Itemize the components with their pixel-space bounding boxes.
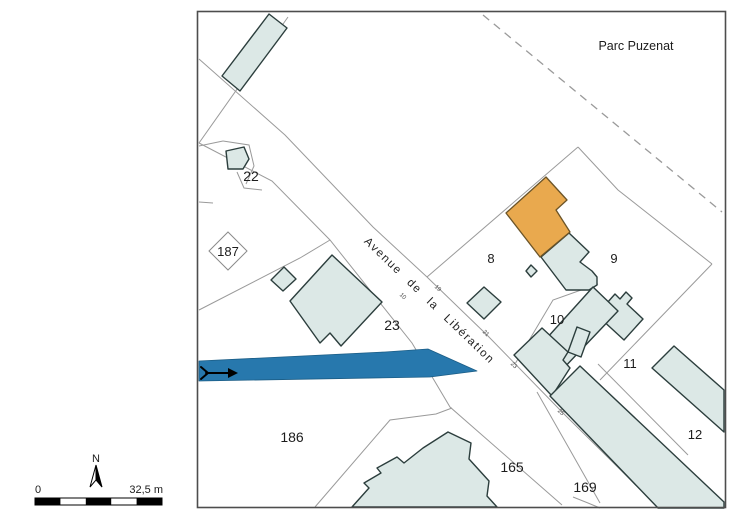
highlighted-path[interactable] bbox=[199, 349, 477, 381]
parcel-label-11: 11 bbox=[623, 356, 637, 371]
north-indicator: N bbox=[90, 453, 102, 487]
parcel-label-12: 12 bbox=[688, 427, 702, 442]
map-canvas[interactable]: Parc Puzenat Avenue de la Libération 22 … bbox=[0, 0, 738, 522]
parcel-label-22: 22 bbox=[243, 168, 259, 184]
north-arrow-icon bbox=[96, 465, 102, 487]
parcel-label-186: 186 bbox=[280, 429, 304, 445]
scale-start-label: 0 bbox=[35, 484, 41, 496]
label-leader-line bbox=[573, 497, 600, 508]
highlighted-path-group bbox=[199, 349, 477, 381]
road-edge-southwest bbox=[199, 143, 562, 505]
scale-bar-segment bbox=[35, 498, 60, 505]
north-arrow-icon bbox=[90, 465, 96, 487]
building bbox=[652, 346, 724, 432]
parcel-label-187: 187 bbox=[217, 244, 239, 259]
map-page: Parc Puzenat Avenue de la Libération 22 … bbox=[0, 0, 738, 522]
address-number: 19 bbox=[433, 284, 442, 293]
building bbox=[526, 265, 537, 277]
scale-bar-segment bbox=[86, 498, 111, 505]
area-label: Parc Puzenat bbox=[598, 39, 674, 53]
scale-end-label: 32,5 m bbox=[129, 484, 163, 496]
address-number: 10 bbox=[398, 292, 407, 301]
parcel-boundary bbox=[199, 141, 223, 146]
building bbox=[222, 14, 287, 91]
parcel-label-9: 9 bbox=[610, 251, 617, 266]
building bbox=[467, 287, 501, 319]
scale-bar-segment bbox=[137, 498, 162, 505]
parcel-boundary bbox=[578, 147, 712, 264]
parcel-label-165: 165 bbox=[500, 459, 524, 475]
scale-bar: 0 32,5 m bbox=[35, 484, 163, 505]
parcel-label-23: 23 bbox=[384, 317, 400, 333]
parcel-label-8: 8 bbox=[487, 251, 494, 266]
north-label: N bbox=[92, 453, 100, 465]
parcel-boundary bbox=[199, 202, 213, 203]
building bbox=[226, 147, 249, 169]
parcel-label-169: 169 bbox=[573, 479, 597, 495]
address-number: 23 bbox=[509, 361, 518, 370]
building bbox=[352, 432, 497, 507]
building bbox=[290, 255, 382, 346]
parcel-label-10: 10 bbox=[550, 312, 564, 327]
